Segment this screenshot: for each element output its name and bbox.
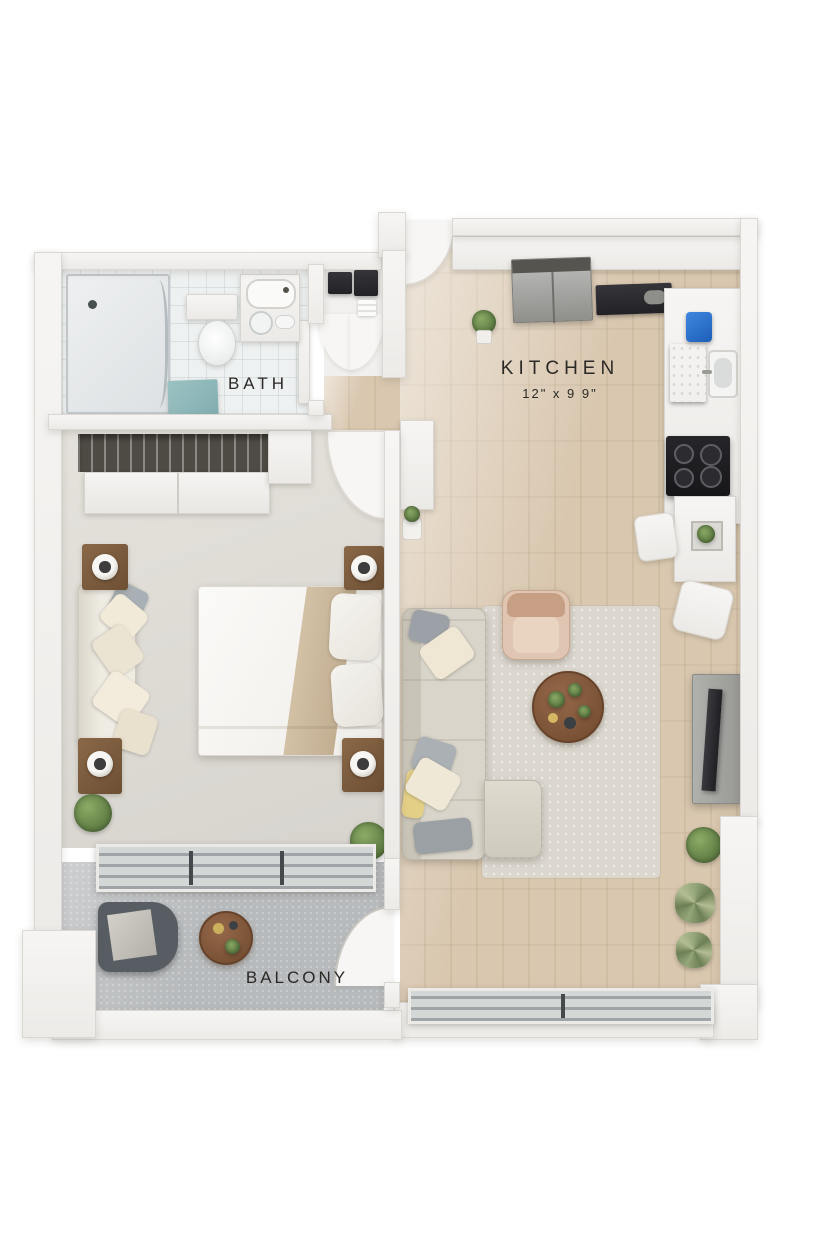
vanity-sink-round bbox=[249, 311, 273, 335]
wall-kitchen-top bbox=[452, 218, 758, 236]
wall-corner-bottom-left bbox=[22, 930, 96, 1038]
burner-icon bbox=[700, 466, 722, 488]
closet-sliding-doors bbox=[84, 472, 270, 514]
bedroom-plant-icon bbox=[74, 794, 112, 832]
balcony-table bbox=[199, 911, 253, 965]
slider-mullion bbox=[561, 994, 565, 1018]
lounge-chair bbox=[98, 902, 178, 972]
wall-nook-right bbox=[382, 250, 406, 378]
wall-balcony-living-upper bbox=[384, 858, 400, 910]
lamp-icon bbox=[92, 554, 118, 580]
dining-chair bbox=[633, 511, 679, 562]
agave-plant-icon bbox=[675, 883, 715, 923]
hall-console bbox=[400, 420, 434, 510]
counter-cooktop bbox=[595, 283, 672, 316]
living-plant-icon bbox=[686, 827, 722, 863]
wall-balcony-bottom bbox=[52, 1010, 402, 1040]
wall-bedroom-living bbox=[384, 430, 400, 860]
planter-plant-icon bbox=[697, 525, 715, 543]
bed-fold-line bbox=[199, 726, 381, 729]
wall-bath-right-upper bbox=[308, 264, 324, 324]
balcony-table-fruit-icon bbox=[213, 923, 224, 934]
bed-pillow bbox=[330, 662, 384, 727]
wall-bath-top bbox=[36, 252, 382, 270]
refrigerator-door-split bbox=[551, 272, 555, 323]
refrigerator bbox=[511, 257, 593, 324]
toilet-cistern bbox=[186, 294, 238, 320]
floor-plan-image: KITCHEN 12" x 9 9" BATH BALCONY bbox=[0, 0, 828, 1242]
sink-basin bbox=[714, 358, 732, 388]
table-fruit-icon bbox=[548, 713, 558, 723]
burner-icon bbox=[674, 444, 694, 464]
bed-pillow bbox=[328, 593, 381, 662]
burner-icon bbox=[674, 468, 694, 488]
cooktop-tray bbox=[644, 290, 666, 305]
closet-hanging-rod bbox=[78, 434, 272, 472]
balcony-table-cup-icon bbox=[229, 921, 238, 930]
burner-icon bbox=[700, 444, 722, 466]
wall-left bbox=[34, 252, 62, 946]
wall-bath-right-lower bbox=[308, 400, 324, 416]
sofa-seat-cushion bbox=[412, 817, 473, 855]
wall-bath-bottom bbox=[48, 414, 332, 430]
armchair bbox=[502, 590, 570, 660]
nightstand bbox=[82, 544, 128, 590]
closet-door-split bbox=[177, 473, 179, 513]
wall-right-lower bbox=[720, 816, 758, 1008]
armchair-seat bbox=[513, 617, 559, 653]
table-plant-icon bbox=[578, 705, 591, 718]
hall-plant-icon bbox=[404, 506, 420, 522]
toilet-bowl bbox=[198, 320, 236, 366]
shower-glass-panel bbox=[145, 280, 168, 408]
kitchen-upper-cabinets bbox=[452, 236, 742, 270]
wall-right-upper bbox=[740, 218, 758, 824]
balcony-sliding-door bbox=[96, 844, 376, 892]
tv-console bbox=[692, 674, 742, 804]
coffee-table bbox=[532, 671, 604, 743]
table-plant-icon bbox=[568, 683, 582, 697]
hallway-floor bbox=[324, 376, 400, 430]
tv-screen bbox=[701, 689, 722, 792]
nightstand bbox=[78, 738, 122, 794]
living-sliding-door bbox=[408, 988, 714, 1024]
slider-mullion bbox=[189, 851, 193, 885]
kitchen-sink bbox=[708, 350, 738, 398]
balcony-label: BALCONY bbox=[236, 968, 358, 988]
kitchen-dimensions: 12" x 9 9" bbox=[460, 386, 660, 401]
laundry-appliance-1 bbox=[328, 272, 352, 294]
shower-head-icon bbox=[88, 300, 97, 309]
entry-plant-pot bbox=[476, 330, 492, 344]
laundry-appliance-2 bbox=[354, 270, 378, 296]
agave-plant-icon bbox=[676, 932, 712, 968]
dining-table bbox=[674, 496, 736, 582]
table-plant-icon bbox=[548, 691, 565, 708]
table-cup-icon bbox=[564, 717, 576, 729]
sink-faucet-icon bbox=[702, 370, 712, 374]
nightstand bbox=[342, 738, 384, 792]
lounge-chair-seat bbox=[107, 909, 157, 961]
bath-label: BATH bbox=[208, 374, 308, 394]
bath-vanity bbox=[240, 274, 300, 342]
table-planter-box bbox=[691, 521, 723, 551]
vanity-soap-dish bbox=[275, 315, 295, 329]
kitchen-label: KITCHEN bbox=[460, 358, 660, 380]
armchair-back bbox=[507, 593, 565, 617]
blue-appliance bbox=[686, 312, 712, 342]
wall-balcony-living-lower bbox=[384, 982, 400, 1008]
lamp-icon bbox=[87, 751, 113, 777]
folded-towels bbox=[358, 300, 376, 316]
closet-cabinet bbox=[268, 430, 312, 484]
slider-mullion bbox=[280, 851, 284, 885]
built-in-appliance-panel bbox=[670, 344, 706, 402]
sectional-sofa-chaise bbox=[484, 780, 542, 858]
balcony-table-plant-icon bbox=[225, 939, 240, 954]
vanity-basin bbox=[246, 279, 296, 309]
vanity-faucet-icon bbox=[283, 287, 289, 293]
shower bbox=[66, 274, 170, 414]
lamp-icon bbox=[350, 751, 376, 777]
stove bbox=[666, 436, 730, 496]
nightstand bbox=[344, 546, 384, 590]
lamp-icon bbox=[351, 555, 377, 581]
